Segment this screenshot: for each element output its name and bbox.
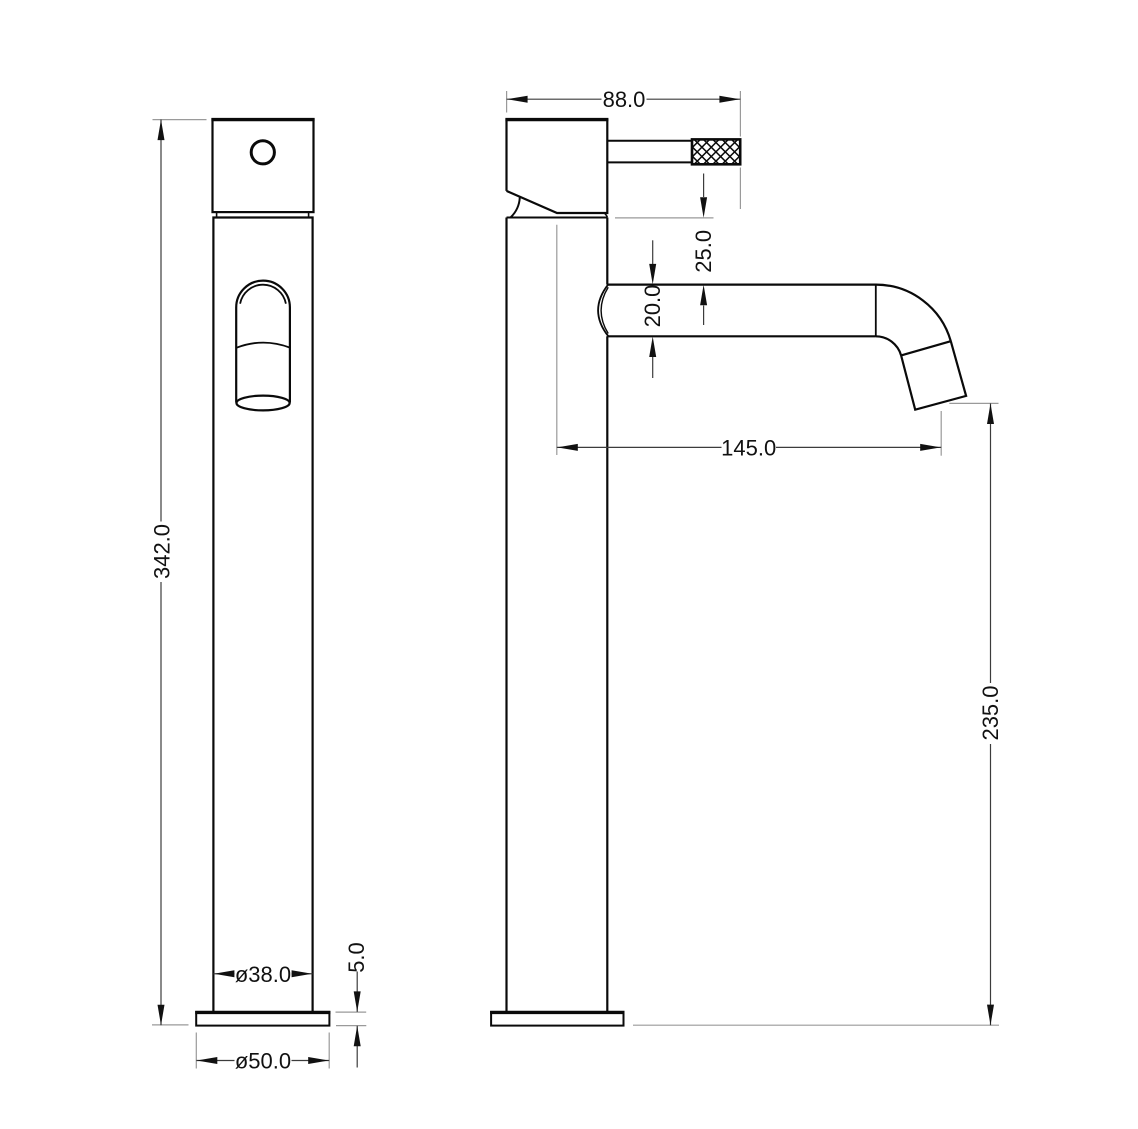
svg-text:342.0: 342.0 [150, 524, 175, 579]
svg-text:25.0: 25.0 [691, 230, 716, 273]
svg-text:ø50.0: ø50.0 [235, 1049, 291, 1074]
svg-text:88.0: 88.0 [603, 87, 646, 112]
svg-text:145.0: 145.0 [721, 435, 776, 460]
svg-text:5.0: 5.0 [344, 942, 369, 973]
svg-text:235.0: 235.0 [978, 685, 1003, 740]
svg-text:20.0: 20.0 [640, 285, 665, 328]
svg-text:ø38.0: ø38.0 [235, 962, 291, 987]
